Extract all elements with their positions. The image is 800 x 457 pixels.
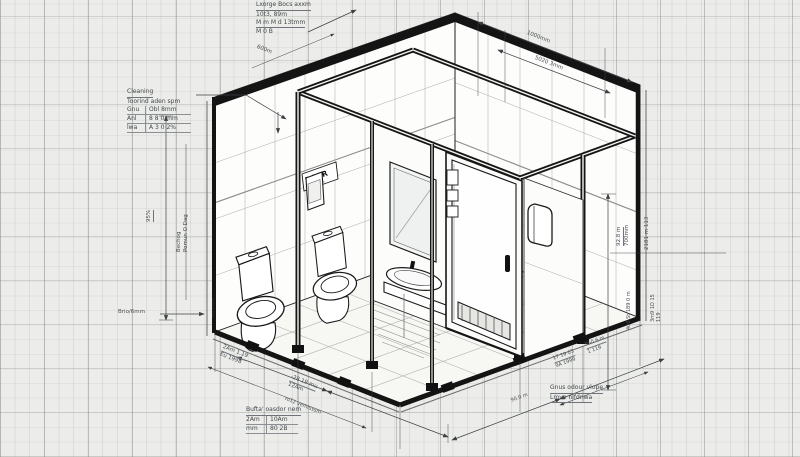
door-side-panels [447,170,458,217]
dim-label-right1: 92.8 m 700mm [616,225,631,246]
cleaning-row1-value: Obl 8mm [146,106,177,114]
graph-paper-sheet: DOER 2t-79t3 99m [0,0,800,457]
door-assembly [446,152,522,357]
cleaning-row3-value: A 3 0 2% [146,124,176,132]
dim-label-left-percent: 95% [146,210,154,222]
buffer-title: Bufta' oasdor nem [246,406,301,416]
left-block-line1: Bechog [176,231,182,252]
soap-dispenser [528,204,552,246]
dim-label-right4: 3m9 1D 15 119 [650,294,663,322]
towel-dispenser [306,172,324,210]
cleaning-row2-label: Anl [127,115,146,123]
slope-line2: Lmvn nlfdnwa [550,394,592,404]
note-cleaning-spec: Cleaning Toorind aden spm GnuObl 8mm Anl… [127,88,217,133]
dim-label-right3: 4u0 St 189 0 m [626,291,632,330]
note-slope: Gnus odour vlope Lmvn nlfdnwa [550,384,603,403]
right1-line2: 700mm [624,225,630,246]
buffer-r1c1: 2Am [246,416,267,424]
right4-line1: 3m9 1D 15 [650,294,656,322]
buffer-r1c2: 10Am [267,416,288,424]
note-top-left-line1: Lxorge Bocs axxm [256,1,311,11]
left-block-line2: Pomun O Dag [183,214,189,252]
door-handle [505,255,510,272]
slope-line1: Gnus odour vlope [550,384,603,394]
right-front-wall [524,178,583,360]
left-percent-text: 95% [146,210,154,222]
note-top-left-line4: M 0 B [256,28,273,35]
note-cleaning-title: Cleaning [127,88,153,98]
note-buffer-table: Bufta' oasdor nem 2Am10Am mm80 2B [246,406,301,434]
buffer-r2c1: mm [246,425,267,433]
cleaning-row3-label: lwa [127,124,146,132]
note-top-left-spec: Lxorge Bocs axxm 10t3, 89m M m M d 13tmm… [256,1,352,36]
right4-line2: 119 [656,312,662,322]
note-top-left-line3: M m M d 13tmm [256,19,305,29]
cleaning-row2-value: 8 8 0 mm [146,115,178,123]
dim-label-brio: Brio/6mm [118,309,145,316]
note-top-left-line2: 10t3, 89m [256,11,287,18]
dim-label-right2: 2181 m 113 [644,217,651,250]
dim-label-left-block: Bechog Pomun O Dag [176,214,190,252]
buffer-r2c2: 80 2B [267,425,287,433]
mirror [390,162,436,262]
cleaning-row1-label: Gnu [127,106,146,114]
right1-line1: 92.8 m [616,227,624,246]
note-cleaning-subtitle: Toorind aden spm [127,98,180,105]
isometric-drawing: DOER 2t-79t3 99m [0,0,800,457]
